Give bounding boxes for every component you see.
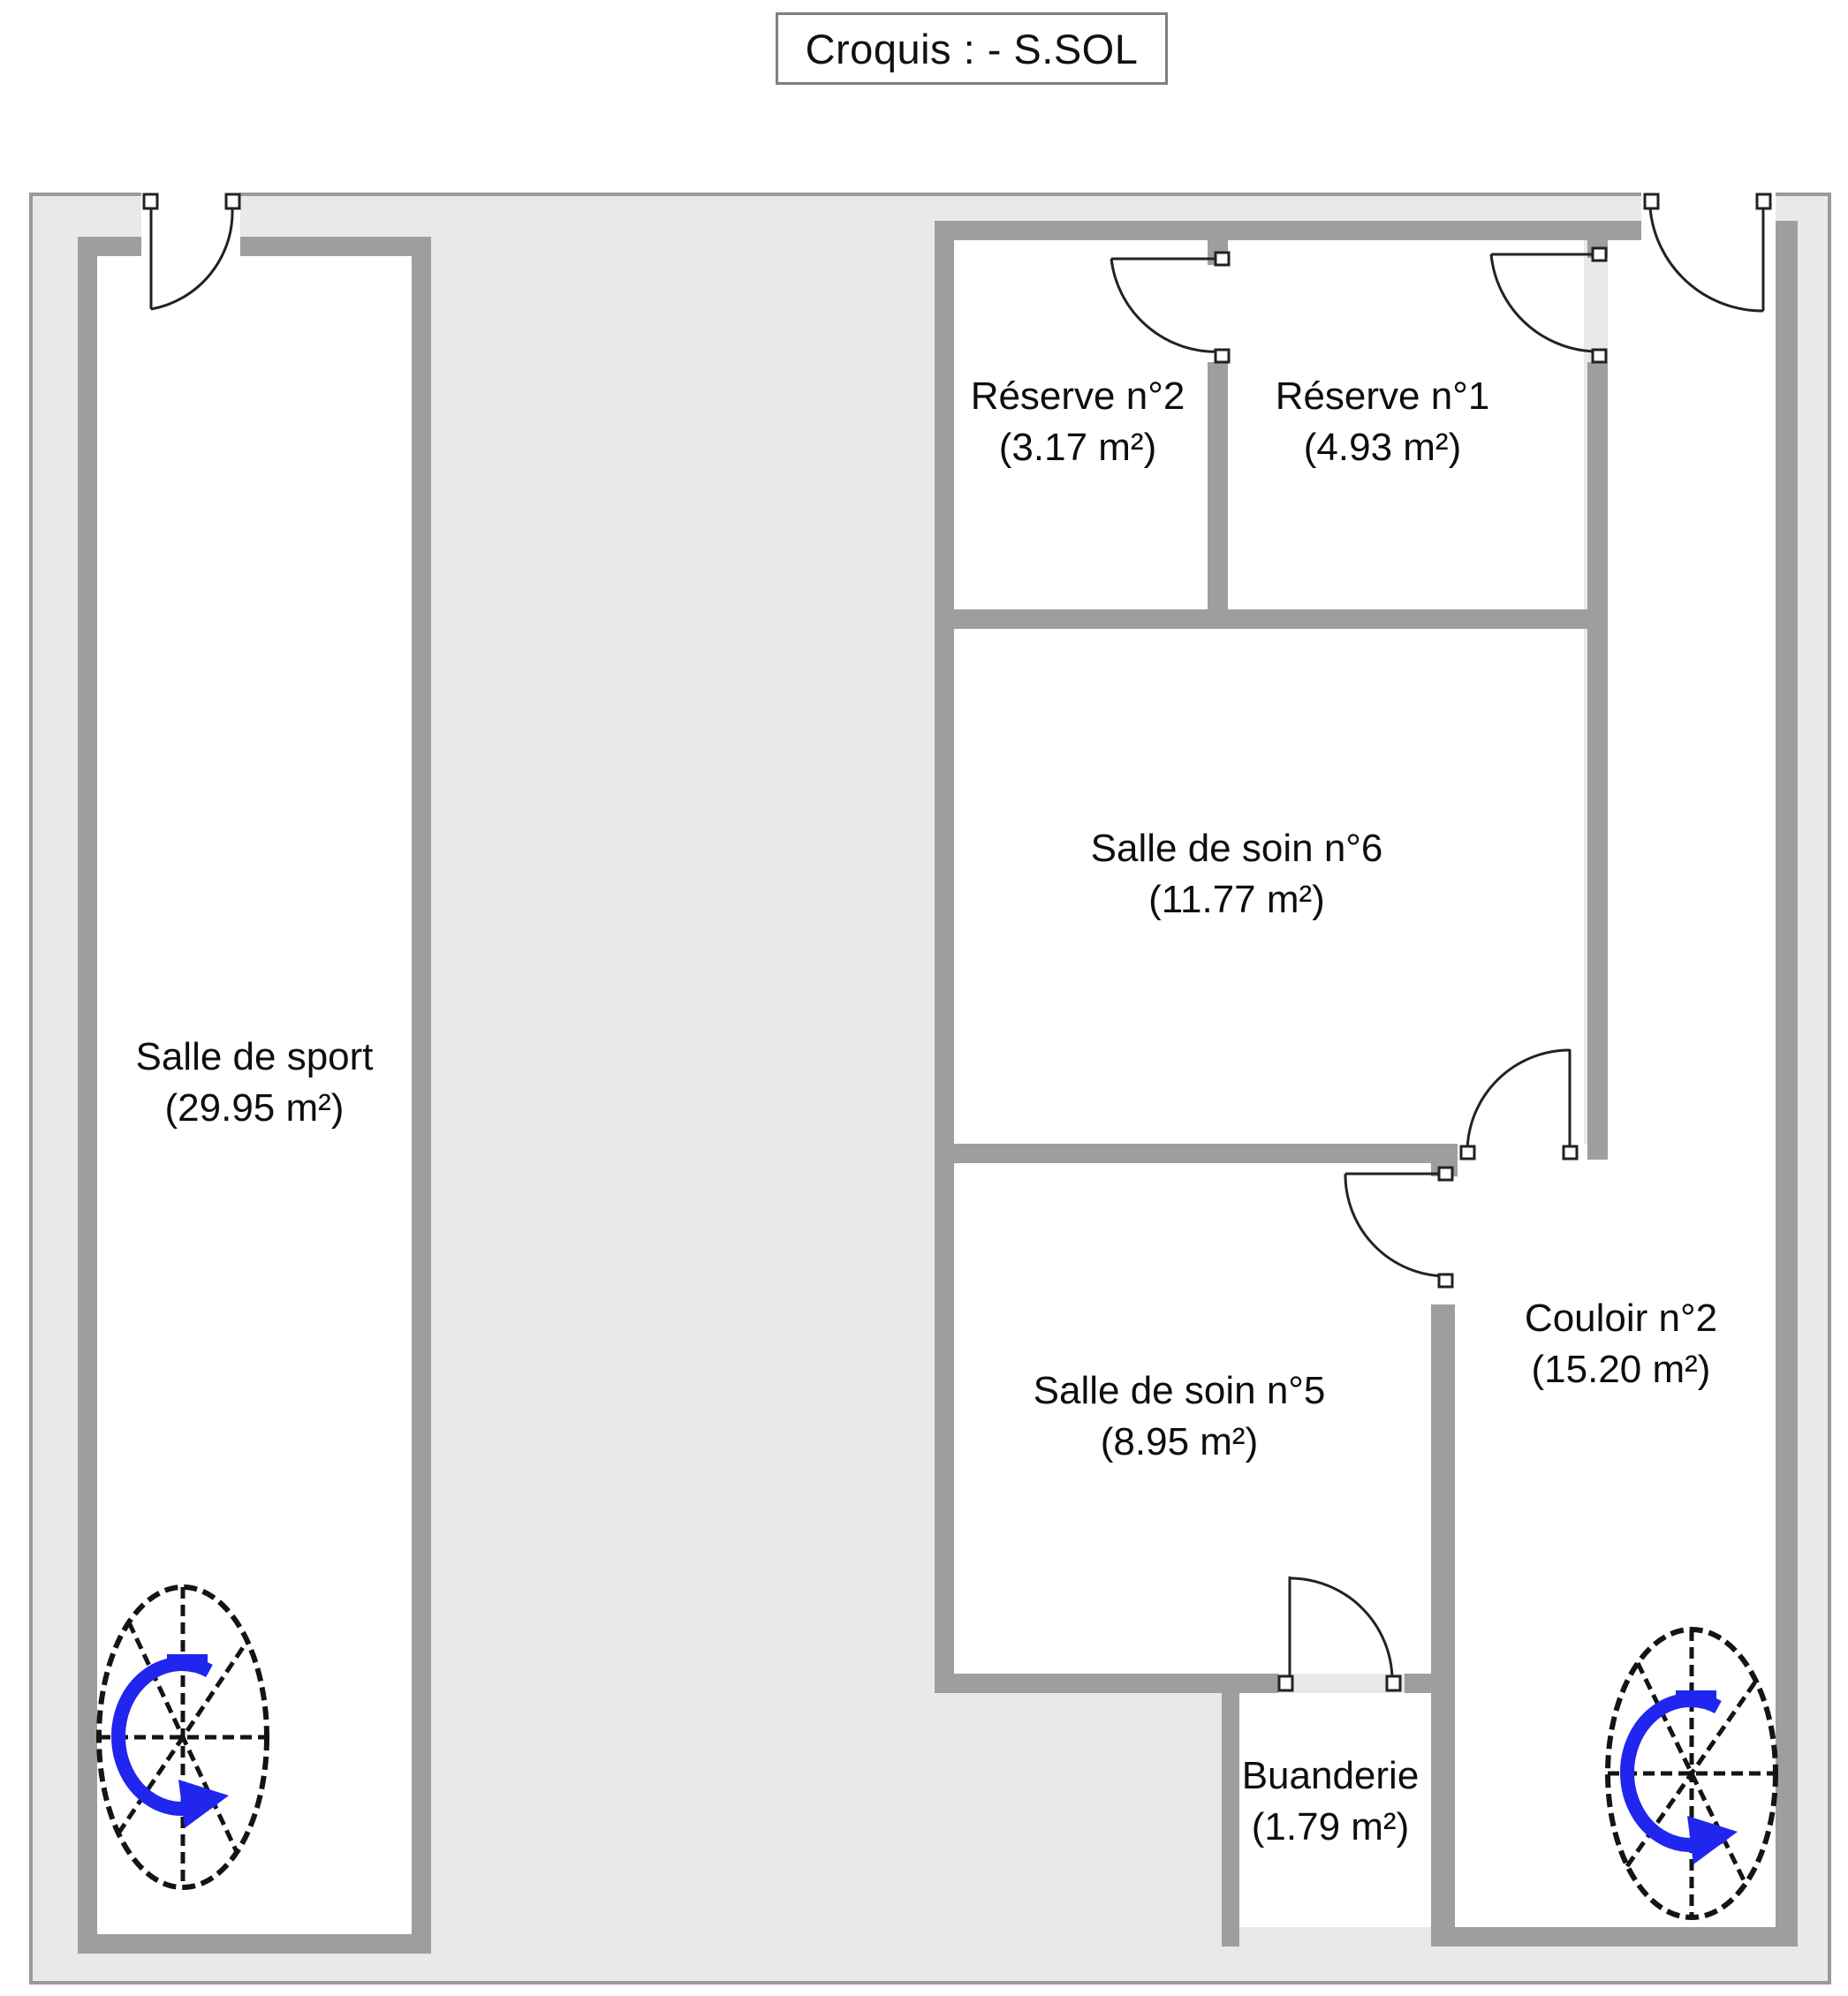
plan-title: Croquis : - S.SOL [806,25,1139,73]
room-name: Salle de soin n°6 [1016,823,1458,874]
room-area: (29.95 m²) [34,1083,475,1134]
door-swing-icon-buanderie [1279,1576,1400,1690]
spiral-staircase-icon [1608,1629,1776,1917]
door-swing-icon-salle-de-sport [144,194,239,309]
room-name: Salle de sport [34,1032,475,1083]
door-swing-icon-soin6 [1461,1049,1577,1159]
symbols-overlay [0,0,1848,1996]
room-label-reserve2: Réserve n°2 (3.17 m²) [945,371,1210,473]
room-label-soin6: Salle de soin n°6 (11.77 m²) [1016,823,1458,926]
room-area: (1.79 m²) [1228,1802,1433,1853]
room-name: Buanderie [1228,1750,1433,1802]
door-swing-icon-reserve1 [1491,248,1606,362]
room-label-salle-de-sport: Salle de sport (29.95 m²) [34,1032,475,1134]
room-area: (4.93 m²) [1228,422,1537,473]
room-name: Couloir n°2 [1458,1293,1784,1344]
floor-plan-canvas: Croquis : - S.SOL [0,0,1848,1996]
room-label-soin5: Salle de soin n°5 (8.95 m²) [958,1365,1400,1468]
door-swing-icon-couloir-entrance [1645,194,1770,311]
room-area: (8.95 m²) [958,1417,1400,1468]
door-swing-icon-soin5 [1345,1168,1452,1287]
room-area: (15.20 m²) [1458,1344,1784,1395]
room-label-buanderie: Buanderie (1.79 m²) [1228,1750,1433,1853]
room-area: (11.77 m²) [1016,874,1458,926]
door-swing-icon-reserve2 [1111,253,1229,362]
room-name: Salle de soin n°5 [958,1365,1400,1417]
plan-title-box: Croquis : - S.SOL [776,12,1168,85]
room-label-reserve1: Réserve n°1 (4.93 m²) [1228,371,1537,473]
room-name: Réserve n°1 [1228,371,1537,422]
room-area: (3.17 m²) [945,422,1210,473]
spiral-staircase-icon [99,1587,267,1887]
room-name: Réserve n°2 [945,371,1210,422]
room-label-couloir2: Couloir n°2 (15.20 m²) [1458,1293,1784,1395]
